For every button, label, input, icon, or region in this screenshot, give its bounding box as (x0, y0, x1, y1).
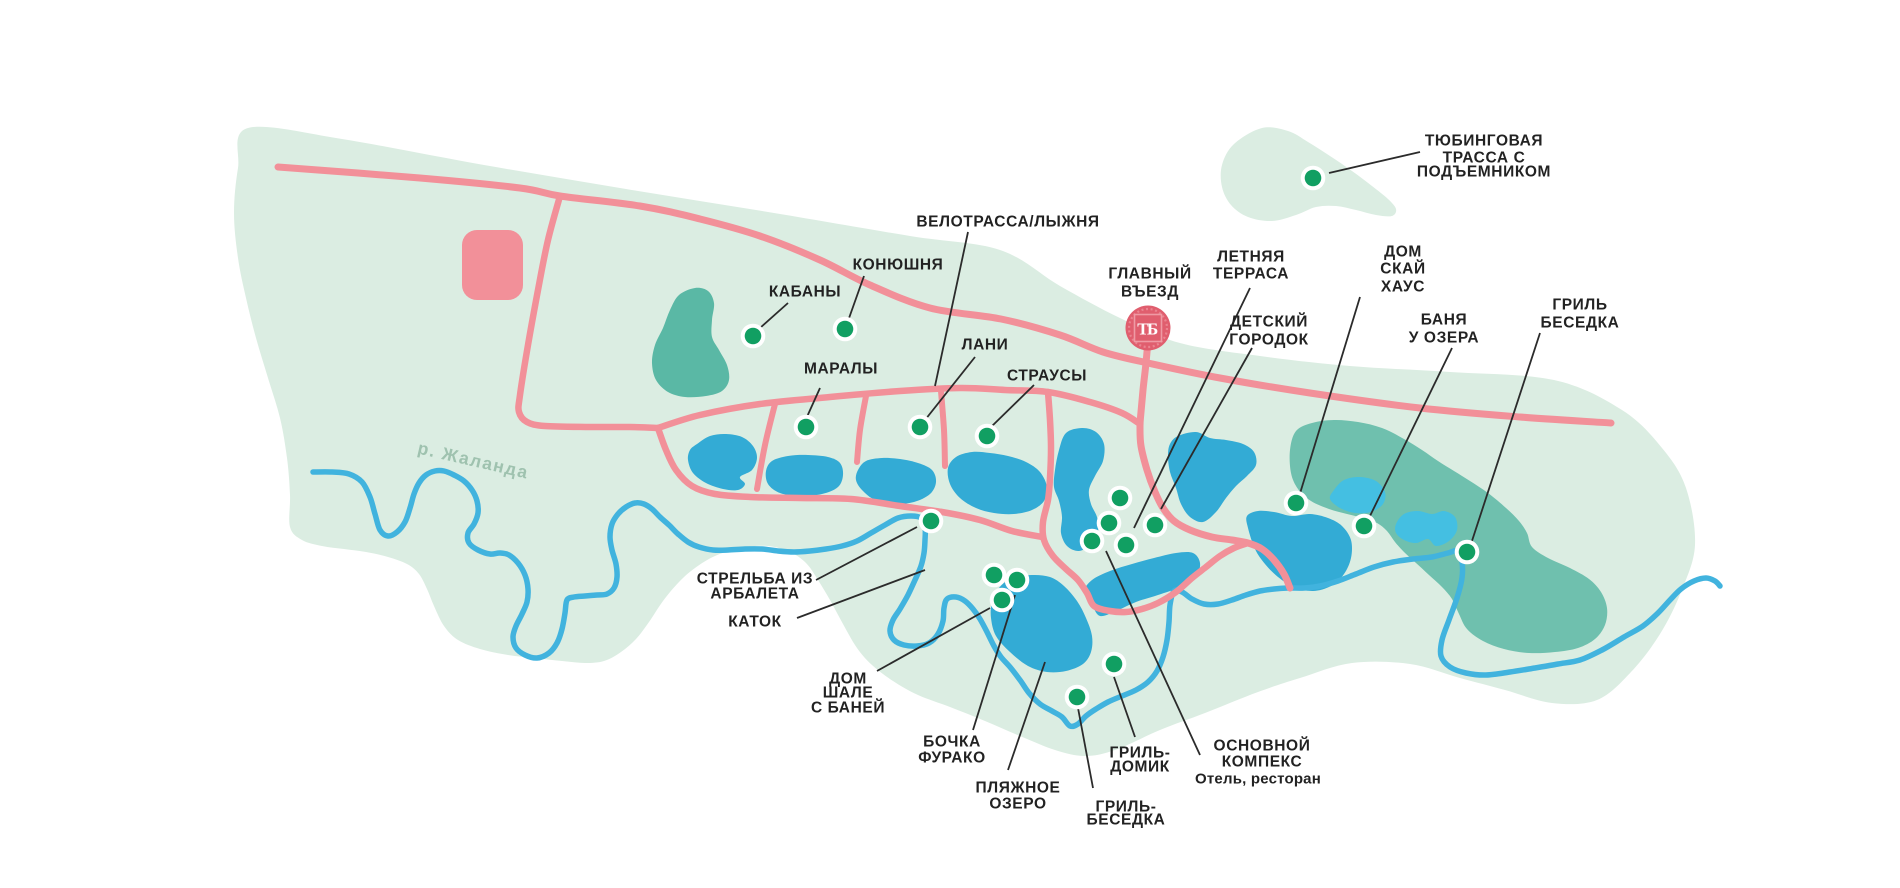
svg-text:МАРАЛЫ: МАРАЛЫ (804, 361, 878, 378)
svg-text:ОСНОВНОЙКОМПЕКС: ОСНОВНОЙКОМПЕКС (1214, 737, 1311, 771)
svg-text:КАТОК: КАТОК (728, 614, 781, 631)
svg-text:ПЛЯЖНОЕОЗЕРО: ПЛЯЖНОЕОЗЕРО (976, 780, 1061, 813)
svg-text:БАНЯУ ОЗЕРА: БАНЯУ ОЗЕРА (1409, 312, 1479, 347)
svg-text:ЛАНИ: ЛАНИ (962, 337, 1009, 354)
svg-text:СТРАУСЫ: СТРАУСЫ (1007, 368, 1087, 385)
svg-text:ГРИЛЬ-БЕСЕДКА: ГРИЛЬ-БЕСЕДКА (1087, 799, 1166, 829)
svg-text:ГРИЛЬБЕСЕДКА: ГРИЛЬБЕСЕДКА (1541, 297, 1620, 332)
svg-text:ГРИЛЬ-ДОМИК: ГРИЛЬ-ДОМИК (1109, 745, 1170, 776)
svg-text:СТРЕЛЬБА ИЗАРБАЛЕТА: СТРЕЛЬБА ИЗАРБАЛЕТА (697, 571, 813, 603)
svg-text:ВЕЛОТРАССА/ЛЫЖНЯ: ВЕЛОТРАССА/ЛЫЖНЯ (916, 214, 1099, 231)
svg-text:ДОМШАЛЕС БАНЕЙ: ДОМШАЛЕС БАНЕЙ (811, 671, 885, 717)
svg-text:ДЕТСКИЙГОРОДОК: ДЕТСКИЙГОРОДОК (1229, 313, 1308, 349)
svg-text:КОНЮШНЯ: КОНЮШНЯ (853, 257, 944, 274)
svg-text:ДОМСКАЙХАУС: ДОМСКАЙХАУС (1380, 244, 1425, 296)
svg-text:БОЧКАФУРАКО: БОЧКАФУРАКО (918, 734, 986, 767)
svg-text:ТБ: ТБ (1137, 320, 1158, 339)
svg-text:Отель, ресторан: Отель, ресторан (1195, 771, 1321, 788)
svg-text:ГЛАВНЫЙВЪЕЗД: ГЛАВНЫЙВЪЕЗД (1108, 265, 1191, 301)
svg-text:КАБАНЫ: КАБАНЫ (769, 284, 841, 301)
svg-text:ЛЕТНЯЯТЕРРАСА: ЛЕТНЯЯТЕРРАСА (1213, 249, 1289, 283)
svg-text:ТЮБИНГОВАЯТРАССА СПОДЪЕМНИКОМ: ТЮБИНГОВАЯТРАССА СПОДЪЕМНИКОМ (1417, 133, 1551, 181)
